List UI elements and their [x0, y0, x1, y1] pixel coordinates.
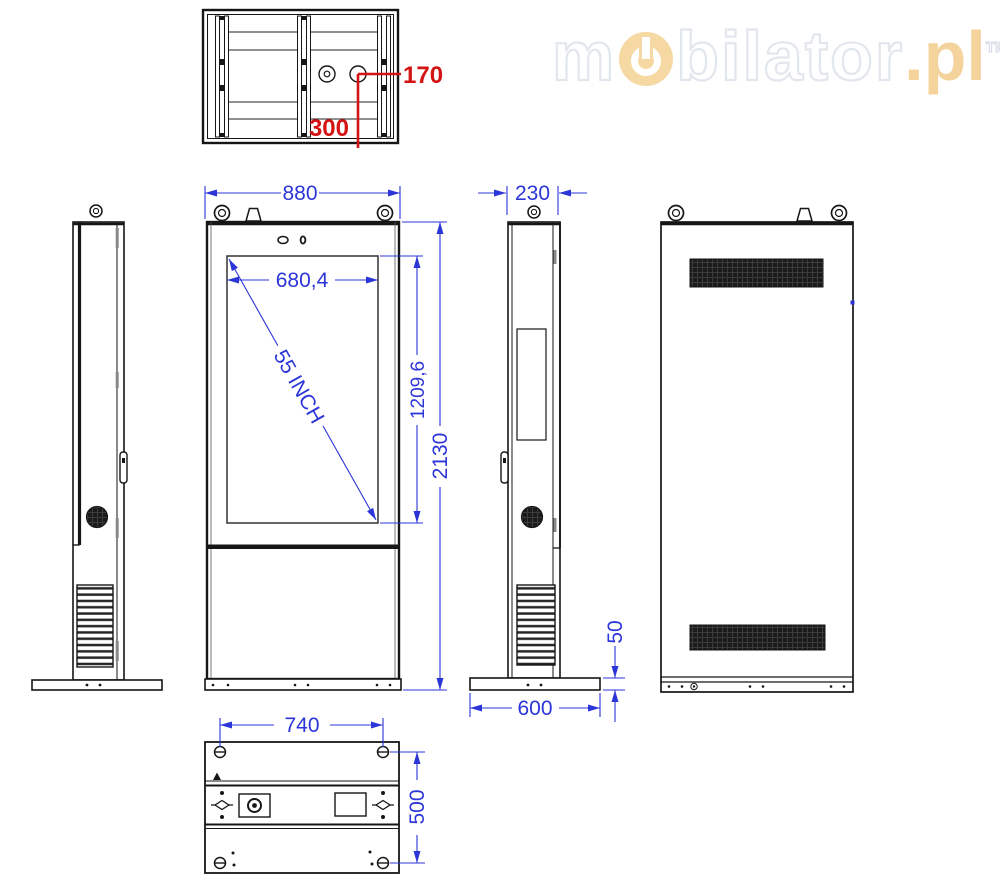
antenna-icon	[797, 209, 812, 222]
screw-dot	[220, 815, 224, 819]
base-screw-dot	[86, 684, 89, 687]
snap-point-mark	[851, 301, 855, 305]
dim-label-500: 500	[406, 789, 429, 824]
cable-gland-center	[252, 803, 257, 808]
dim-front-width: 880	[205, 182, 400, 219]
dim-base-height: 50	[603, 620, 627, 722]
anchor-bolt	[215, 858, 226, 869]
front-eyebolts	[215, 206, 393, 221]
screw-dot	[220, 791, 224, 795]
base-screw-dot	[527, 684, 530, 687]
back-view	[661, 206, 855, 693]
dim-label-680-4: 680,4	[276, 269, 329, 292]
top-view-outer-frame	[203, 10, 398, 143]
anchor-bolt	[215, 747, 226, 758]
screw-dot	[381, 791, 385, 795]
right-side-view	[470, 206, 600, 690]
front-base-strip	[205, 679, 401, 690]
back-panel	[661, 222, 853, 692]
top-view: 170 300	[203, 10, 443, 148]
top-view-hole	[319, 66, 335, 82]
anchor-bolt	[378, 858, 389, 869]
anchor-bolt	[378, 747, 389, 758]
dim-label-50: 50	[604, 620, 627, 643]
dim-total-height: 2130	[402, 222, 452, 690]
screw-dot	[381, 815, 385, 819]
louver-vent	[77, 585, 113, 667]
base-plate	[32, 680, 162, 690]
dim-base-depth: 600	[470, 693, 600, 720]
left-side-view	[32, 205, 162, 690]
dim-label-600: 600	[517, 697, 552, 720]
speaker-grille-icon	[522, 507, 543, 528]
drawing-canvas: 170 300	[0, 0, 1000, 879]
back-eyebolts	[669, 206, 847, 221]
offset-y-label: 300	[309, 115, 349, 142]
base-screw-dot	[540, 684, 543, 687]
dim-label-880: 880	[282, 182, 317, 205]
lock-handle	[120, 452, 127, 483]
front-divider-band	[207, 545, 399, 550]
eyebolt-icon	[528, 206, 540, 218]
lock-detail	[122, 458, 125, 463]
dim-label-1209-6: 1209,6	[408, 361, 429, 419]
bottom-view	[205, 742, 399, 873]
base-screw-dot	[99, 684, 102, 687]
dim-label-2130: 2130	[429, 433, 452, 480]
antenna-icon	[246, 209, 261, 222]
dim-label-230: 230	[515, 182, 550, 205]
lock-detail	[503, 458, 506, 463]
kiosk-dimension-drawing: mbilator.plTM	[0, 0, 1000, 879]
drain-hole-center	[693, 685, 695, 687]
lock-handle	[501, 452, 508, 483]
speaker-grille-icon	[87, 507, 108, 528]
louver-vent	[517, 585, 555, 665]
dim-label-740: 740	[284, 714, 319, 737]
offset-x-label: 170	[403, 62, 443, 89]
eyebolt-icon	[90, 205, 102, 217]
base-plate	[470, 678, 600, 690]
top-mesh-vent	[690, 259, 823, 287]
bottom-mesh-vent	[690, 625, 825, 650]
